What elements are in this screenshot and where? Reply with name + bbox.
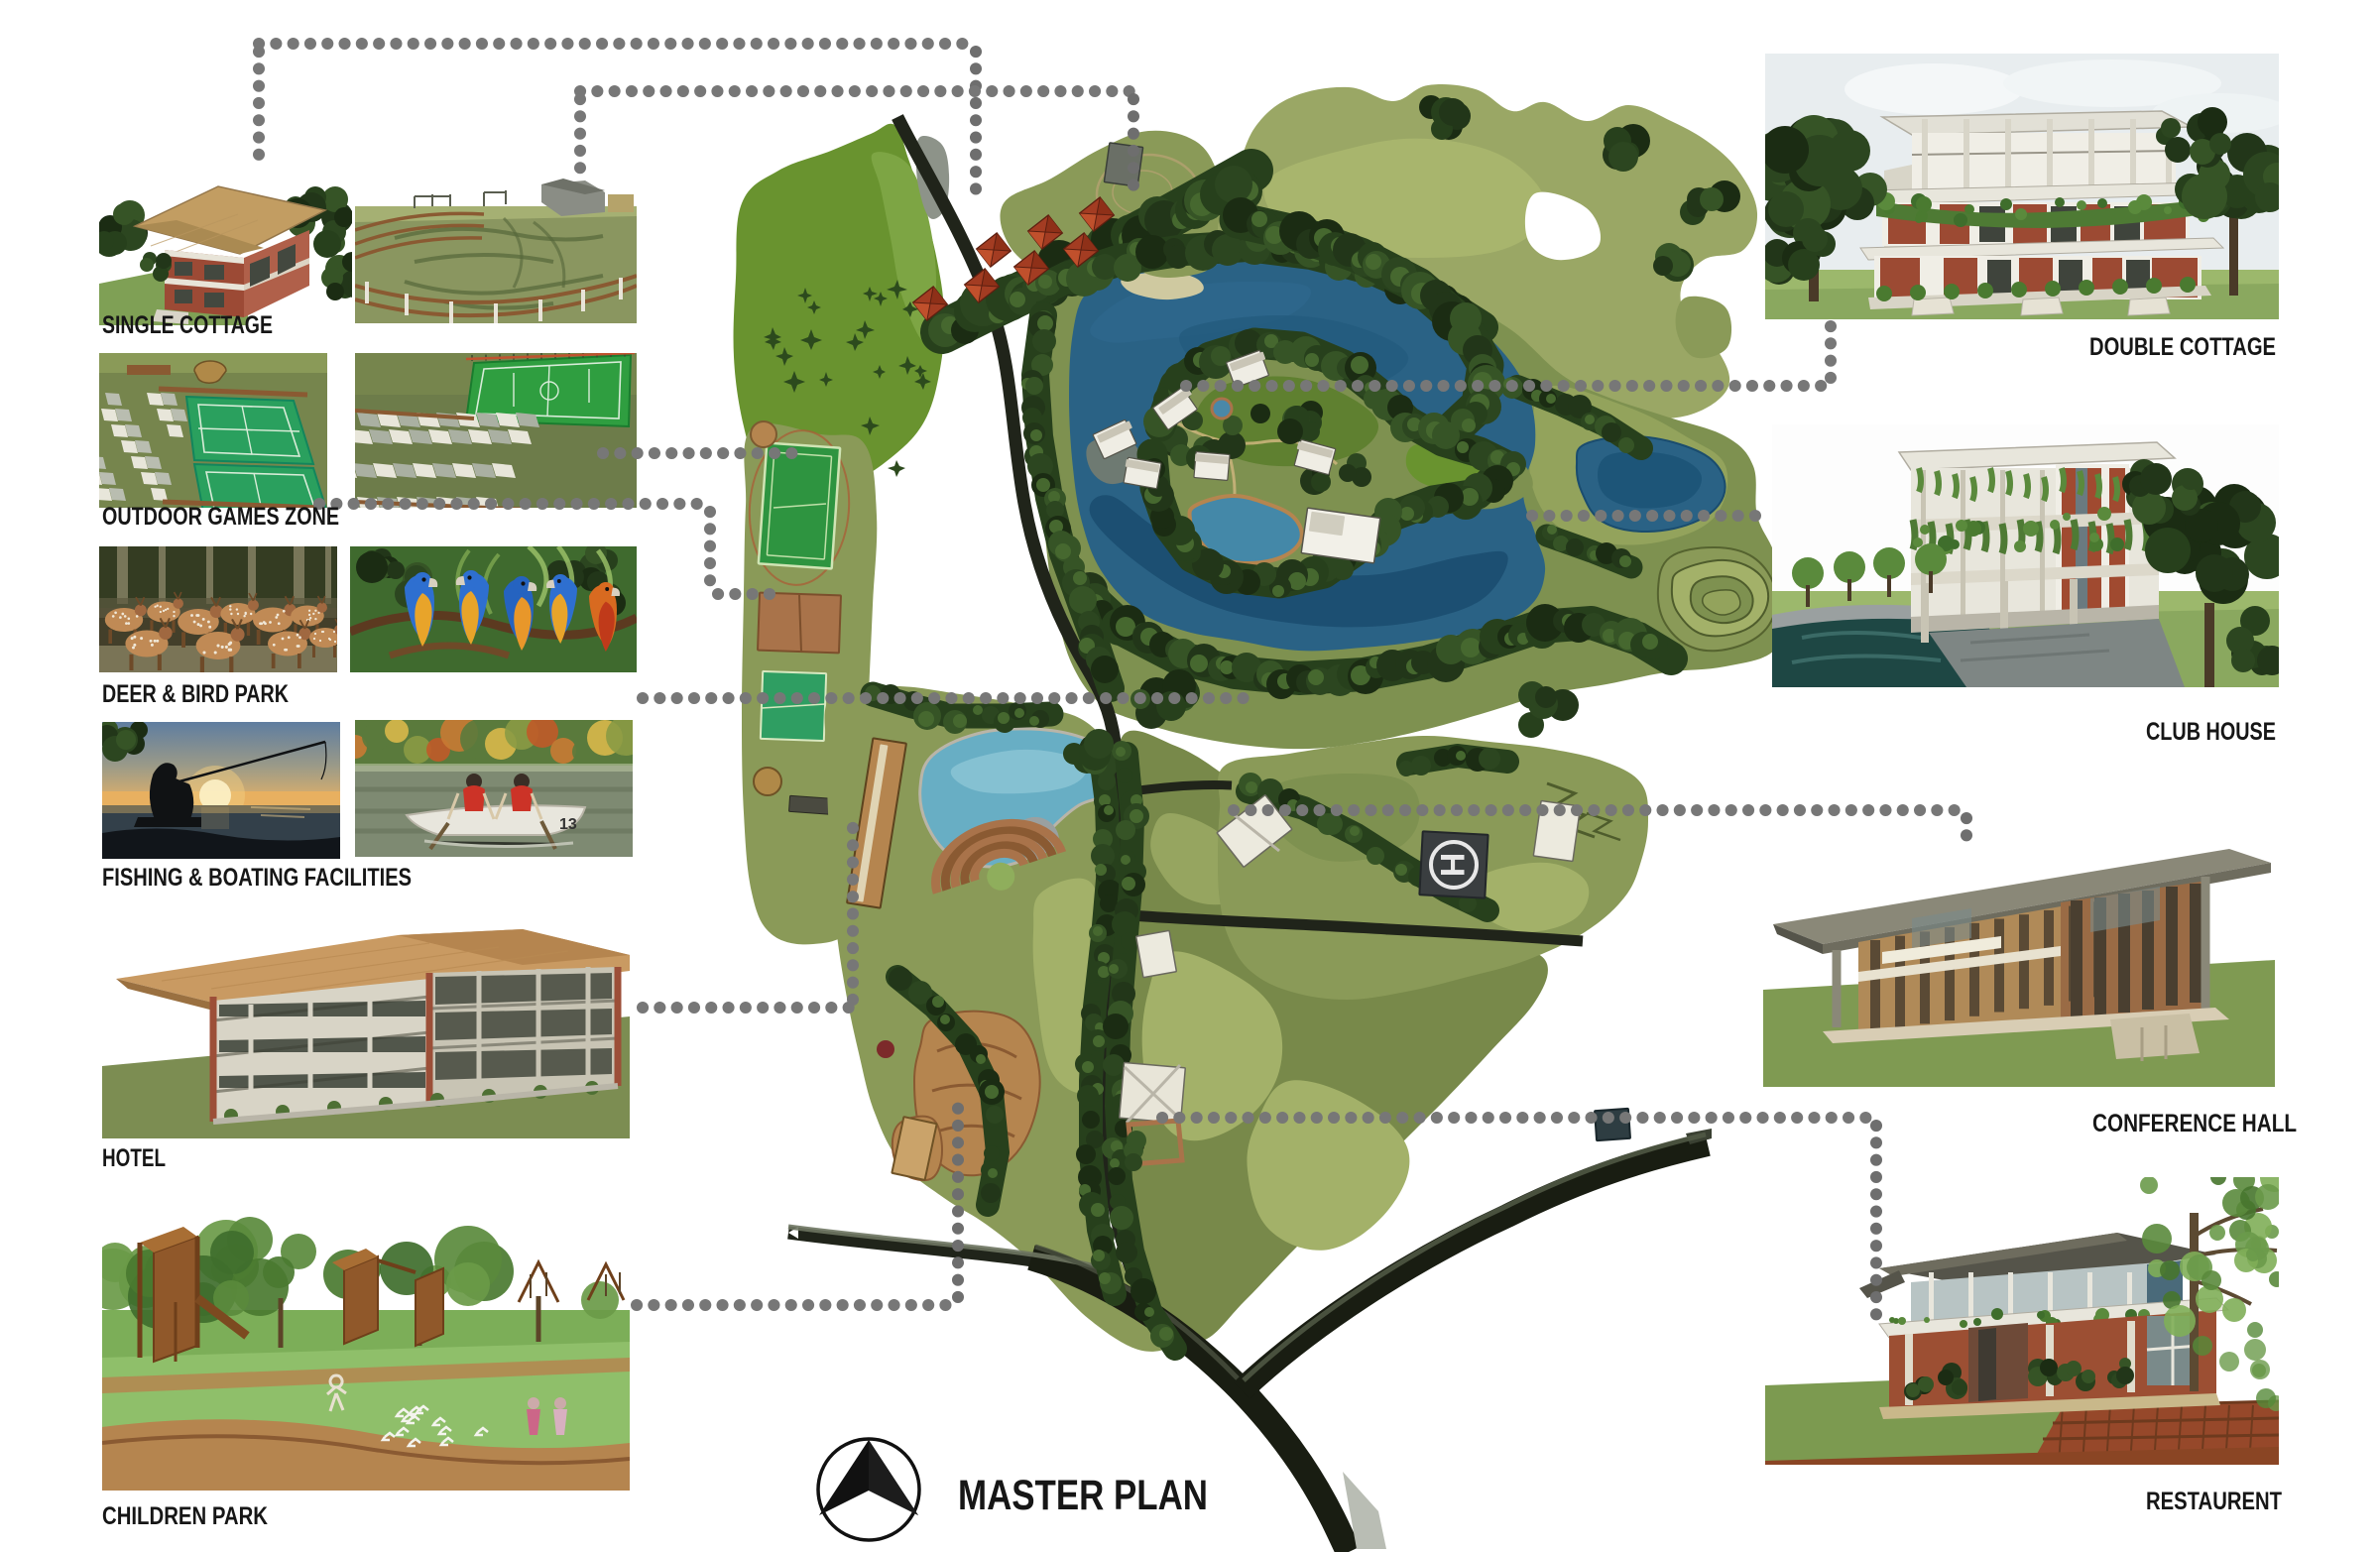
svg-text:13: 13 — [559, 816, 577, 833]
svg-text:H: H — [1433, 853, 1471, 878]
svg-text:HOTEL: HOTEL — [102, 1144, 166, 1172]
svg-text:CLUB HOUSE: CLUB HOUSE — [2146, 718, 2276, 746]
svg-text:SINGLE COTTAGE: SINGLE COTTAGE — [102, 311, 273, 339]
svg-text:OUTDOOR GAMES ZONE: OUTDOOR GAMES ZONE — [102, 503, 339, 531]
svg-text:DOUBLE COTTAGE: DOUBLE COTTAGE — [2089, 333, 2276, 361]
svg-text:MASTER PLAN: MASTER PLAN — [958, 1472, 1208, 1519]
svg-text:DEER & BIRD PARK: DEER & BIRD PARK — [102, 680, 289, 708]
svg-text:CHILDREN PARK: CHILDREN PARK — [102, 1502, 268, 1530]
svg-text:RESTAURENT: RESTAURENT — [2146, 1488, 2282, 1515]
svg-text:FISHING & BOATING FACILITIES: FISHING & BOATING FACILITIES — [102, 864, 412, 892]
svg-text:CONFERENCE HALL: CONFERENCE HALL — [2092, 1110, 2297, 1137]
